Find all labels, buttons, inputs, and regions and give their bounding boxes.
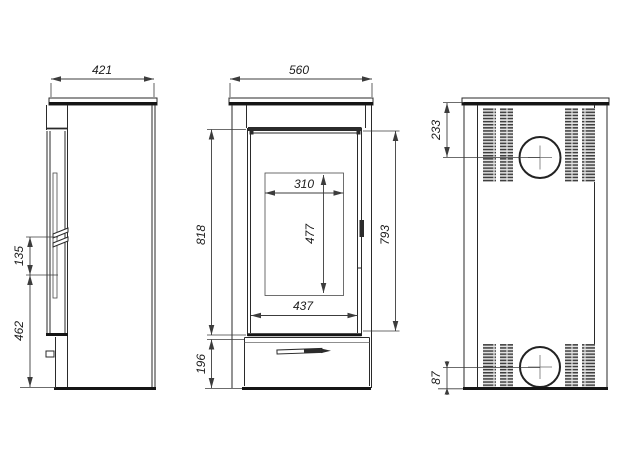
side-view: 421 135 462 [12,63,157,389]
front-body-outline [232,105,372,388]
vent-grille [500,108,513,182]
side-dim-handle-height-label: 462 [12,321,26,341]
side-handle-clip-lower [53,237,68,247]
side-air-latch [46,351,54,357]
front-dim-glass-width-label: 437 [293,299,314,313]
front-ext-lines-top [230,83,372,97]
vent-grille [565,344,578,387]
side-ext-lines-top [51,83,154,97]
front-dim-glass-inner-height-label: 477 [303,223,317,244]
front-dim-base-height-label: 196 [194,354,208,374]
side-dim-depth-label: 421 [92,63,112,77]
front-dim-opening-height-label: 793 [378,225,392,245]
dimension-drawing: 421 135 462 560 [0,0,624,460]
vent-grille [500,344,513,387]
back-view: 233 87 [429,98,609,395]
front-door-hinge-right [357,131,361,135]
vent-grille [483,108,496,182]
front-handle-tip [321,348,331,353]
front-dim-glass-inner-width-label: 310 [294,177,314,191]
front-door-top-band [248,127,362,131]
front-handle [277,348,331,354]
back-dim-flue-bottom-arrow-top [445,362,450,369]
back-dim-flue-top-label: 233 [429,120,443,141]
vent-grille [565,108,578,182]
front-dim-width-label: 560 [289,63,309,77]
side-handle-clip-upper [53,228,68,238]
front-view: 560 310 477 437 818 196 793 [194,63,400,389]
front-door-latch [360,220,365,237]
vent-grille [582,344,595,387]
front-door-hinge-left [250,131,254,135]
front-dim-door-height-label: 818 [194,225,208,245]
back-dim-flue-bottom-label: 87 [429,370,443,385]
side-dim-handle-span-label: 135 [12,246,26,266]
front-handle-grip [304,349,321,353]
vent-grille [582,108,595,182]
side-body-outline [47,105,156,388]
vent-grille [483,344,496,387]
drawing-canvas: 421 135 462 560 [0,0,624,460]
